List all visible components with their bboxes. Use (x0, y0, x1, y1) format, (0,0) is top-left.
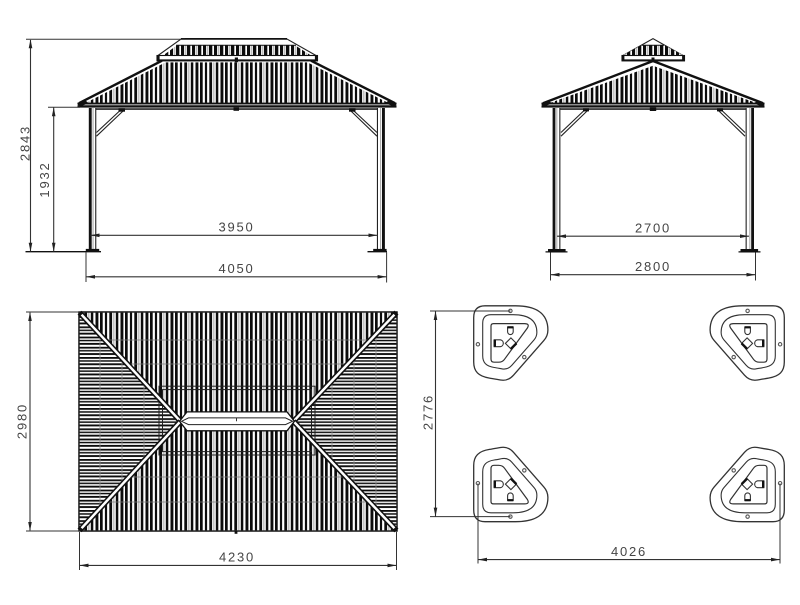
svg-text:2843: 2843 (17, 125, 32, 161)
svg-text:2980: 2980 (15, 403, 30, 439)
svg-text:1932: 1932 (37, 161, 52, 197)
svg-text:2776: 2776 (421, 394, 436, 430)
svg-text:4026: 4026 (611, 544, 647, 559)
svg-text:4230: 4230 (219, 550, 255, 565)
svg-text:3950: 3950 (218, 220, 254, 235)
svg-text:2700: 2700 (635, 220, 671, 235)
svg-text:4050: 4050 (218, 261, 254, 276)
svg-text:2800: 2800 (635, 259, 671, 274)
